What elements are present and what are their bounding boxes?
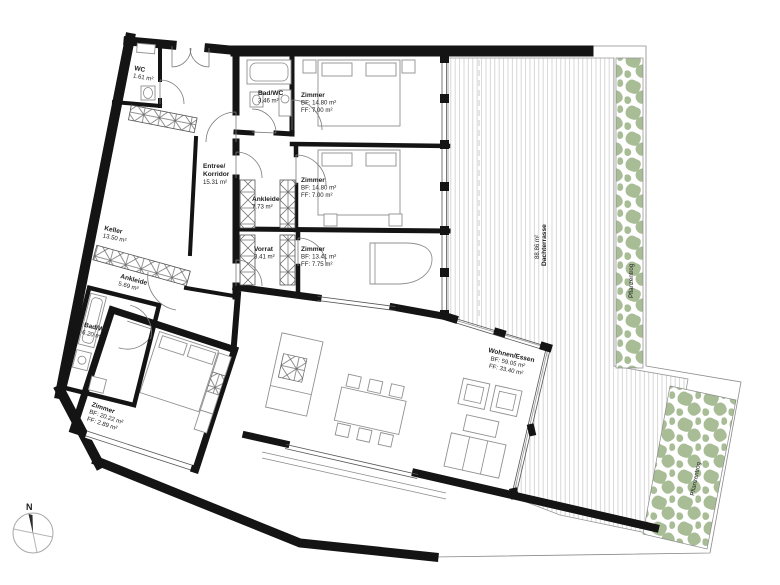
compass: N [13,502,53,553]
row2-wall [236,229,448,231]
dining-chair [378,433,393,448]
window-stub [440,56,449,63]
room-label-zimmer3-bf: BF: 13.41 m² [301,254,336,261]
armchair [490,385,522,416]
dining-chair [346,374,361,389]
pillow [366,63,396,76]
pillow [322,63,352,76]
room-label-entree1: Entree/ [203,163,226,170]
room-label-dachterrasse: Dachterrasse [541,224,548,266]
room-label-entree-area: 15.31 m² [203,179,227,186]
room-label-zimmer3-ff: FF: 7.75 m² [301,261,333,268]
room-label-wc-area: 1.61 m² [132,72,154,82]
bath-top-fixtures [247,60,291,116]
room-label-badwc-area: 3.46 m² [258,98,279,105]
room-label-badwc: Bad/WC [258,90,284,97]
corridor-south-wall [186,288,234,296]
bed3-south-wall [236,287,448,317]
armchair [458,378,490,409]
room-label-zimmer1-bf: BF: 14.80 m² [301,100,336,107]
kitchen-west-wall [234,294,238,344]
room-label-vorrat: Vorrat [254,246,274,253]
bed3-window-line1 [318,297,395,307]
vorrat-shelf-left [240,235,255,285]
coffee-table [463,415,499,438]
grand-piano [370,243,432,284]
compass-north-label: N [26,502,33,512]
window-stub [440,268,449,277]
wc-door-arc [160,80,184,104]
living-south-window-2 [285,449,417,479]
ankleide1-door-arc [236,152,262,178]
keller-east-wall [190,138,196,254]
nightstand [402,60,415,73]
planter-right [616,58,643,368]
living-south-wall-stub [246,435,286,444]
dining-chair [335,423,350,438]
room-label-zimmer1-ff: FF: 7.00 m² [301,107,333,114]
nightstand [324,214,337,226]
nightstand [389,214,402,226]
room-label-ankleide1: Ankleide [252,196,280,203]
room-label-zimmer2: Zimmer [301,177,325,184]
dining-chair [357,428,372,443]
window-stub [440,182,449,191]
room-label-ankleide1-area: 7.73 m² [252,204,273,211]
pillow [366,153,396,166]
nightstand [303,60,316,73]
room-label-zimmer3: Zimmer [301,246,325,253]
sofa [444,433,506,478]
vanity [72,350,91,371]
dining-chair [389,384,404,399]
living-dining-furniture [261,333,523,479]
label-pflanzentrog-right: Pflanzentrog [628,264,635,298]
bedroom3-furniture [370,243,432,284]
floor-plan-svg: Zimmer BF: 20.22 m² FF: 2.89 m² Bad/WC 6… [0,0,780,585]
bath-door-arc [252,109,276,133]
south-facade-wall [97,461,434,557]
room-label-vorrat-area: 3.41 m² [254,254,275,261]
window-stub [440,226,449,235]
room-label-zimmer1: Zimmer [301,92,325,99]
room-label-zimmer2-ff: FF: 7.00 m² [301,192,333,199]
pillow [322,153,352,166]
living-south-window-1 [286,445,418,475]
vorrat-shelf-right [280,235,295,285]
bed3-window-line2 [318,301,395,311]
room-label-zimmer2-bf: BF: 14.80 m² [301,185,336,192]
room-label-entree2: Korridor [203,171,230,178]
entry-wardrobe-hatch [128,105,197,133]
bed1-bed2-wall [292,144,448,146]
room-label-dachterrasse-area: 88.86 m² [534,235,541,259]
room-label-keller-area: 13.50 m² [102,232,127,244]
dining-chair [368,379,383,394]
window-stub [440,94,449,103]
entry-top-wall-right [209,48,240,51]
ankleide1-wardrobe-right [280,180,295,228]
corridor-door-arc [206,112,236,142]
cooktop [278,354,307,383]
floor-plan-page: Zimmer BF: 20.22 m² FF: 2.89 m² Bad/WC 6… [0,0,780,585]
toilet [89,376,107,393]
washbasin [137,43,156,54]
window-stub [440,140,449,149]
